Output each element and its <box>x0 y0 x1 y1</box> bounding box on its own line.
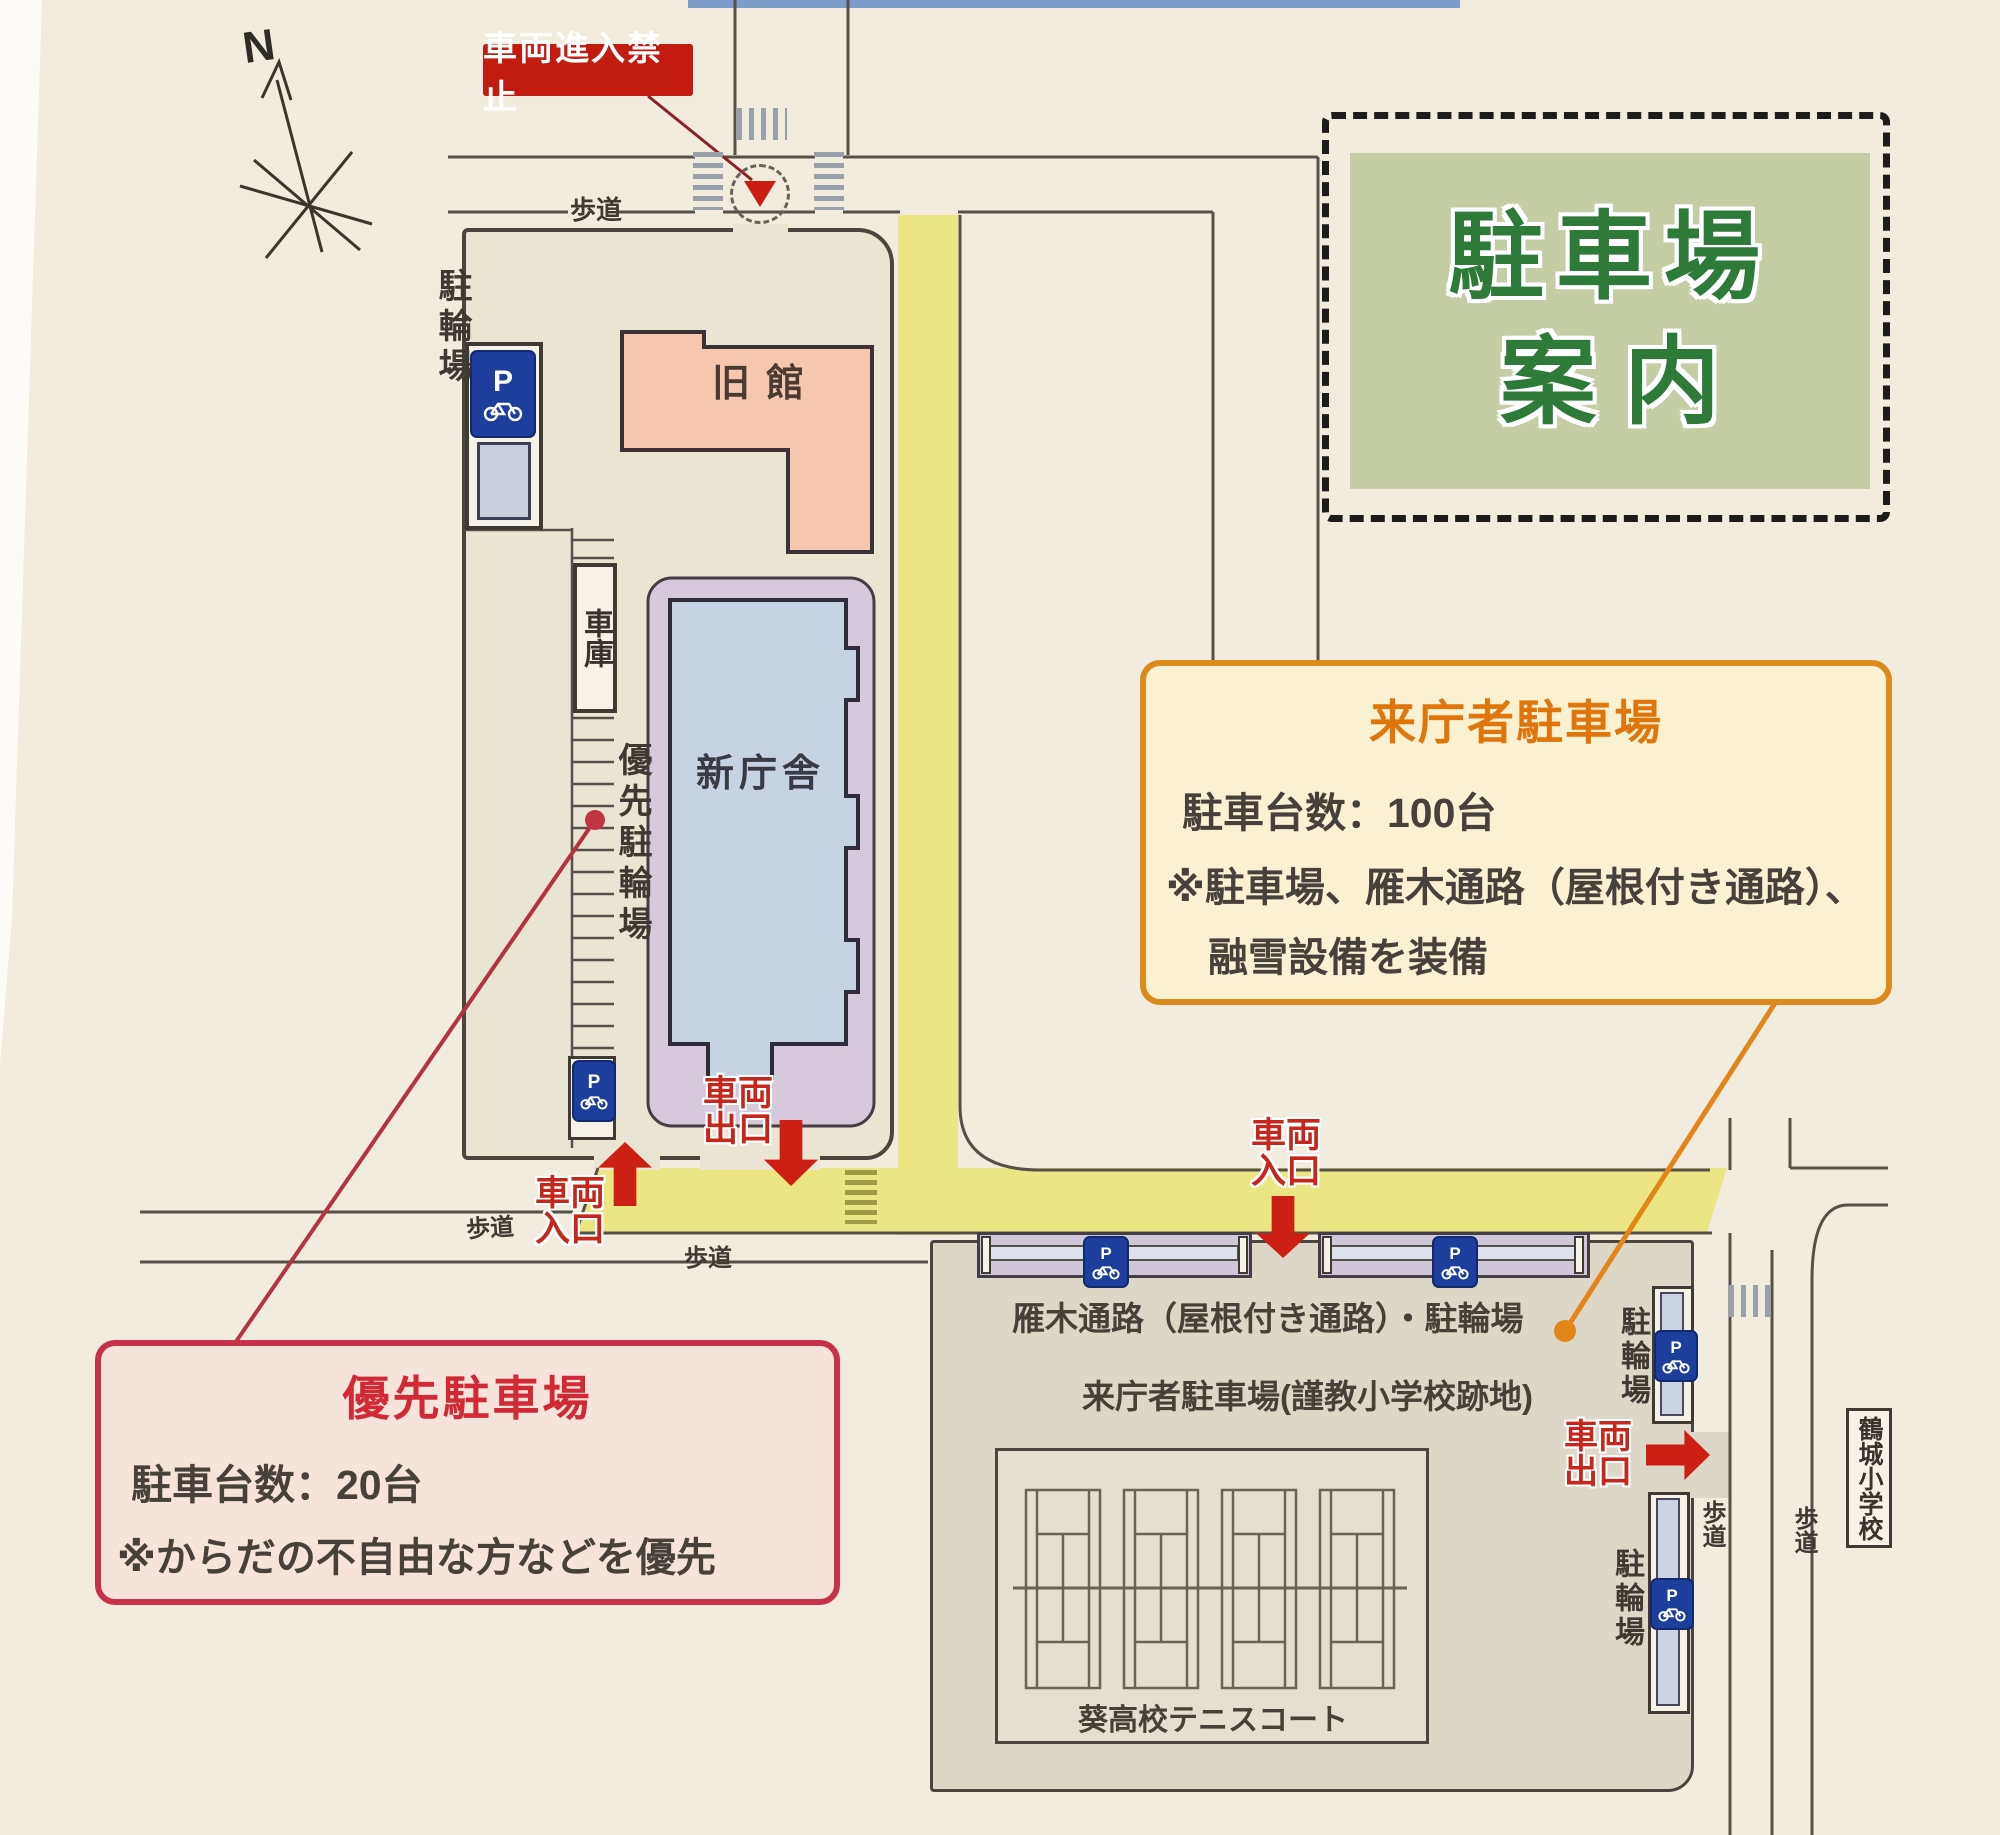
gate-entrance-west-label: 車両 入口 <box>530 1176 610 1249</box>
bicycle-parking-label-east-north: 駐輪場 <box>1610 1306 1654 1408</box>
gangi-strip-west-post-l <box>981 1236 991 1274</box>
p-bicycle-sign-southwest: P <box>572 1060 616 1122</box>
sidewalk-label-top: 歩道 <box>570 190 622 227</box>
visitor-callout-note2: 融雪設備を装備 <box>1208 925 1886 983</box>
crosswalk-west <box>693 152 723 210</box>
visitor-parking-callout: 来庁者駐車場 駐車台数：100台 ※駐車場、雁木通路（屋根付き通路）、 融雪設備… <box>1140 660 1892 1005</box>
bicycle-icon <box>1658 1605 1686 1622</box>
sidewalk-label-center: 歩道 <box>684 1238 732 1273</box>
priority-bicycle-parking-label: 優先駐輪場 <box>608 742 657 947</box>
priority-callout-title: 優先駐車場 <box>101 1360 834 1429</box>
compass-rose <box>240 62 372 258</box>
bicycle-icon <box>1092 1263 1120 1280</box>
p-letter: P <box>493 367 513 397</box>
bicycle-icon <box>483 398 523 422</box>
title-line2: 案内 <box>1472 321 1748 446</box>
gate-exit-east-label: 車両 出口 <box>1558 1420 1638 1491</box>
gate-text: 入口 <box>530 1212 610 1248</box>
gate-text: 車両 <box>530 1176 610 1212</box>
bicycle-icon <box>1662 1357 1690 1374</box>
gate-text: 車両 <box>698 1076 778 1112</box>
gate-exit-west-label: 車両 出口 <box>698 1076 778 1149</box>
no-entry-circle <box>730 164 790 224</box>
tennis-courts <box>1013 1490 1407 1688</box>
p-bicycle-sign-east-north: P <box>1654 1330 1698 1382</box>
title-line1: 駐車場 <box>1448 196 1772 321</box>
gate-text: 車両 <box>1246 1118 1326 1154</box>
title-box: 駐車場 案内 <box>1322 112 1890 522</box>
visitor-callout-note1: ※駐車場、雁木通路（屋根付き通路）、 <box>1166 855 1886 913</box>
bicycle-rack-north-stand <box>477 442 531 520</box>
p-bicycle-sign-gangi-east: P <box>1432 1236 1478 1288</box>
bicycle-icon <box>1441 1263 1469 1280</box>
crosswalk-east <box>814 152 844 210</box>
p-bicycle-sign-northwest: P <box>470 350 536 438</box>
garage-label: 車庫 <box>573 608 617 668</box>
priority-parking-callout: 優先駐車場 駐車台数：20台 ※からだの不自由な方などを優先 <box>95 1340 840 1605</box>
visitor-parking-area-label: 来庁者駐車場(謹教小学校跡地) <box>1082 1370 1533 1418</box>
garage-box: 車庫 <box>573 563 617 713</box>
gate-entrance-center-label: 車両 入口 <box>1246 1118 1326 1191</box>
new-building-label: 新庁舎 <box>696 742 825 797</box>
p-bicycle-sign-east-south: P <box>1650 1578 1694 1630</box>
tsurujo-elementary-label: 鶴城小学校 <box>1851 1416 1887 1541</box>
visitor-callout-title: 来庁者駐車場 <box>1146 684 1886 753</box>
p-letter: P <box>1670 1339 1681 1356</box>
title-box-panel: 駐車場 案内 <box>1350 153 1870 489</box>
gate-text: 車両 <box>1558 1420 1638 1455</box>
parking-guide-map: 車庫 P P P P P P N 歩道 駐輪場 旧館 新庁舎 優先駐輪場 歩 <box>0 0 2000 1835</box>
no-entry-triangle-icon <box>744 181 776 207</box>
old-building-label: 旧館 <box>712 352 820 407</box>
compass-north-label: N <box>240 20 278 74</box>
tsurujo-elementary-box: 鶴城小学校 <box>1846 1408 1892 1548</box>
no-entry-label: 車両進入禁止 <box>483 44 693 96</box>
gangi-strip-east-post-r <box>1574 1236 1584 1274</box>
p-letter: P <box>1449 1245 1460 1262</box>
sidewalk-label-east-inner: 歩道 <box>1694 1500 1729 1548</box>
crosswalk-north <box>737 108 787 140</box>
gate-text: 入口 <box>1246 1154 1326 1190</box>
crosswalk-southeast <box>1729 1285 1775 1317</box>
new-building-shape <box>670 600 858 1078</box>
p-bicycle-sign-gangi-west: P <box>1083 1236 1129 1288</box>
priority-callout-capacity: 駐車台数：20台 <box>131 1451 834 1511</box>
no-entry-label-text: 車両進入禁止 <box>483 21 693 119</box>
tennis-court-label: 葵高校テニスコート <box>1078 1695 1348 1739</box>
gangi-strip-east-post-l <box>1322 1236 1332 1274</box>
gangi-passage-label: 雁木通路（屋根付き通路）・駐輪場 <box>1012 1292 1524 1340</box>
priority-callout-note: ※からだの不自由な方などを優先 <box>117 1525 834 1583</box>
visitor-callout-capacity: 駐車台数：100台 <box>1182 779 1886 839</box>
bicycle-parking-label-northwest: 駐輪場 <box>428 268 477 388</box>
bicycle-icon <box>580 1093 608 1110</box>
sidewalk-label-west: 歩道 <box>465 1207 515 1244</box>
gate-text: 出口 <box>1558 1455 1638 1490</box>
gangi-strip-west-post-r <box>1238 1236 1248 1274</box>
p-letter: P <box>1666 1587 1677 1604</box>
p-letter: P <box>1100 1245 1111 1262</box>
sidewalk-label-east-outer: 歩道 <box>1786 1506 1821 1554</box>
bicycle-parking-label-east-south: 駐輪場 <box>1604 1548 1648 1650</box>
gate-text: 出口 <box>698 1112 778 1148</box>
p-letter: P <box>588 1073 601 1092</box>
